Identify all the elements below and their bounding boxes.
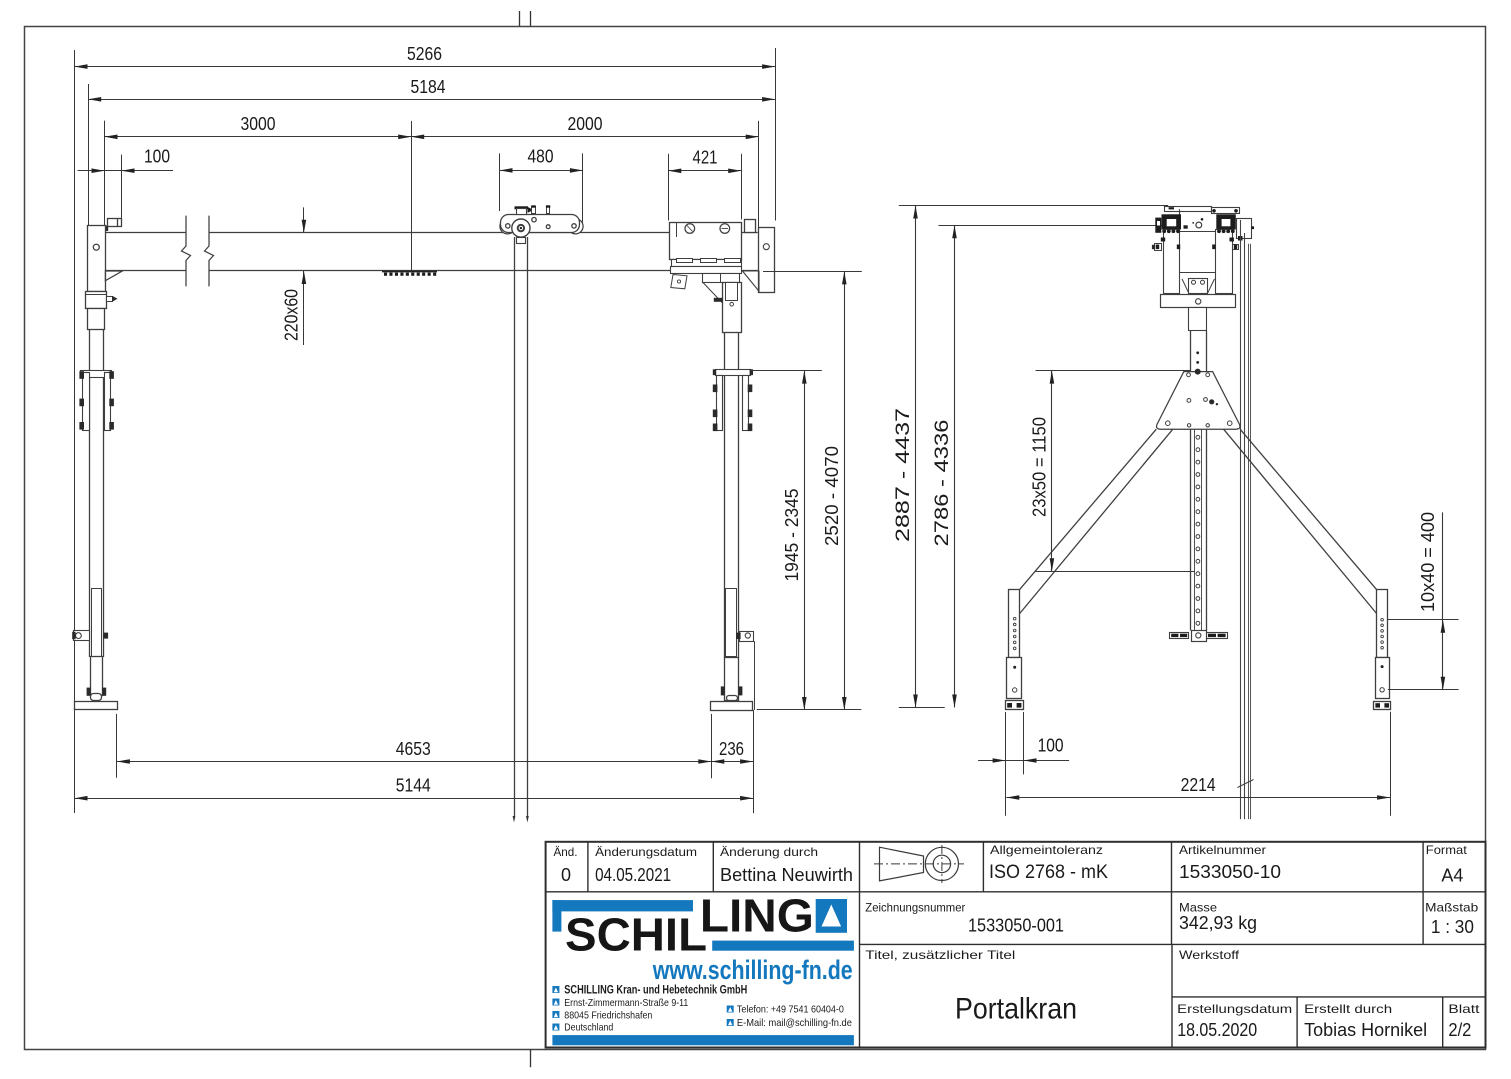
- svg-text:100: 100: [1038, 736, 1064, 756]
- svg-text:www.schilling-fn.de: www.schilling-fn.de: [652, 955, 853, 985]
- svg-text:1533050-001: 1533050-001: [968, 916, 1064, 936]
- svg-text:100: 100: [144, 147, 170, 167]
- svg-text:Änderung durch: Änderung durch: [720, 845, 818, 859]
- svg-text:Format: Format: [1426, 843, 1468, 857]
- svg-text:04.05.2021: 04.05.2021: [595, 865, 671, 885]
- svg-text:2/2: 2/2: [1448, 1020, 1471, 1040]
- svg-text:3000: 3000: [241, 114, 276, 134]
- svg-text:E-Mail: mail@schilling-fn.de: E-Mail: mail@schilling-fn.de: [737, 1017, 852, 1029]
- svg-text:2214: 2214: [1181, 775, 1216, 795]
- svg-text:5144: 5144: [396, 776, 431, 796]
- svg-text:SCHIL: SCHIL: [565, 909, 707, 961]
- svg-text:1945 - 2345: 1945 - 2345: [782, 489, 802, 582]
- svg-text:A4: A4: [1441, 866, 1463, 886]
- svg-text:Maßstab: Maßstab: [1425, 901, 1478, 915]
- svg-text:2786 - 4336: 2786 - 4336: [932, 420, 953, 547]
- svg-text:Werkstoff: Werkstoff: [1179, 948, 1240, 962]
- svg-text:LING: LING: [700, 890, 814, 942]
- svg-text:ISO 2768 - mK: ISO 2768 - mK: [989, 862, 1108, 883]
- svg-text:Deutschland: Deutschland: [564, 1022, 613, 1034]
- svg-text:Artikelnummer: Artikelnummer: [1179, 843, 1266, 857]
- svg-text:Allgemeintoleranz: Allgemeintoleranz: [990, 843, 1103, 857]
- svg-text:236: 236: [719, 739, 744, 759]
- svg-text:0: 0: [561, 865, 571, 885]
- svg-text:4653: 4653: [396, 739, 431, 759]
- svg-text:Änd.: Änd.: [554, 845, 578, 859]
- svg-text:Erstellt durch: Erstellt durch: [1304, 1002, 1392, 1016]
- svg-text:Blatt: Blatt: [1448, 1002, 1480, 1016]
- svg-text:Bettina Neuwirth: Bettina Neuwirth: [720, 865, 853, 885]
- svg-text:480: 480: [528, 147, 554, 167]
- svg-text:Zeichnungsnummer: Zeichnungsnummer: [865, 901, 965, 915]
- svg-text:220x60: 220x60: [281, 289, 301, 341]
- svg-text:Ernst-Zimmermann-Straße 9-11: Ernst-Zimmermann-Straße 9-11: [564, 997, 688, 1009]
- svg-text:23x50 = 1150: 23x50 = 1150: [1029, 417, 1049, 517]
- svg-text:342,93 kg: 342,93 kg: [1179, 913, 1257, 933]
- svg-text:Telefon: +49 7541 60404-0: Telefon: +49 7541 60404-0: [737, 1004, 844, 1016]
- svg-text:1 : 30: 1 : 30: [1431, 917, 1474, 937]
- svg-text:88045 Friedrichshafen: 88045 Friedrichshafen: [564, 1009, 652, 1021]
- svg-text:2000: 2000: [568, 114, 603, 134]
- svg-text:1533050-10: 1533050-10: [1179, 862, 1281, 882]
- svg-text:Titel, zusätzlicher Titel: Titel, zusätzlicher Titel: [865, 948, 1015, 962]
- svg-text:Tobias Hornikel: Tobias Hornikel: [1304, 1020, 1427, 1040]
- svg-text:Portalkran: Portalkran: [955, 993, 1077, 1026]
- svg-text:5184: 5184: [411, 77, 446, 97]
- svg-text:421: 421: [693, 148, 718, 168]
- svg-text:2887 - 4437: 2887 - 4437: [893, 408, 914, 542]
- svg-text:Änderungsdatum: Änderungsdatum: [595, 845, 697, 859]
- svg-text:SCHILLING Kran- und Hebetechni: SCHILLING Kran- und Hebetechnik GmbH: [564, 985, 747, 997]
- svg-text:18.05.2020: 18.05.2020: [1177, 1020, 1257, 1040]
- svg-text:2520 - 4070: 2520 - 4070: [822, 446, 842, 546]
- svg-text:5266: 5266: [407, 44, 442, 64]
- svg-text:Erstellungsdatum: Erstellungsdatum: [1177, 1002, 1292, 1016]
- svg-text:10x40 = 400: 10x40 = 400: [1418, 512, 1438, 612]
